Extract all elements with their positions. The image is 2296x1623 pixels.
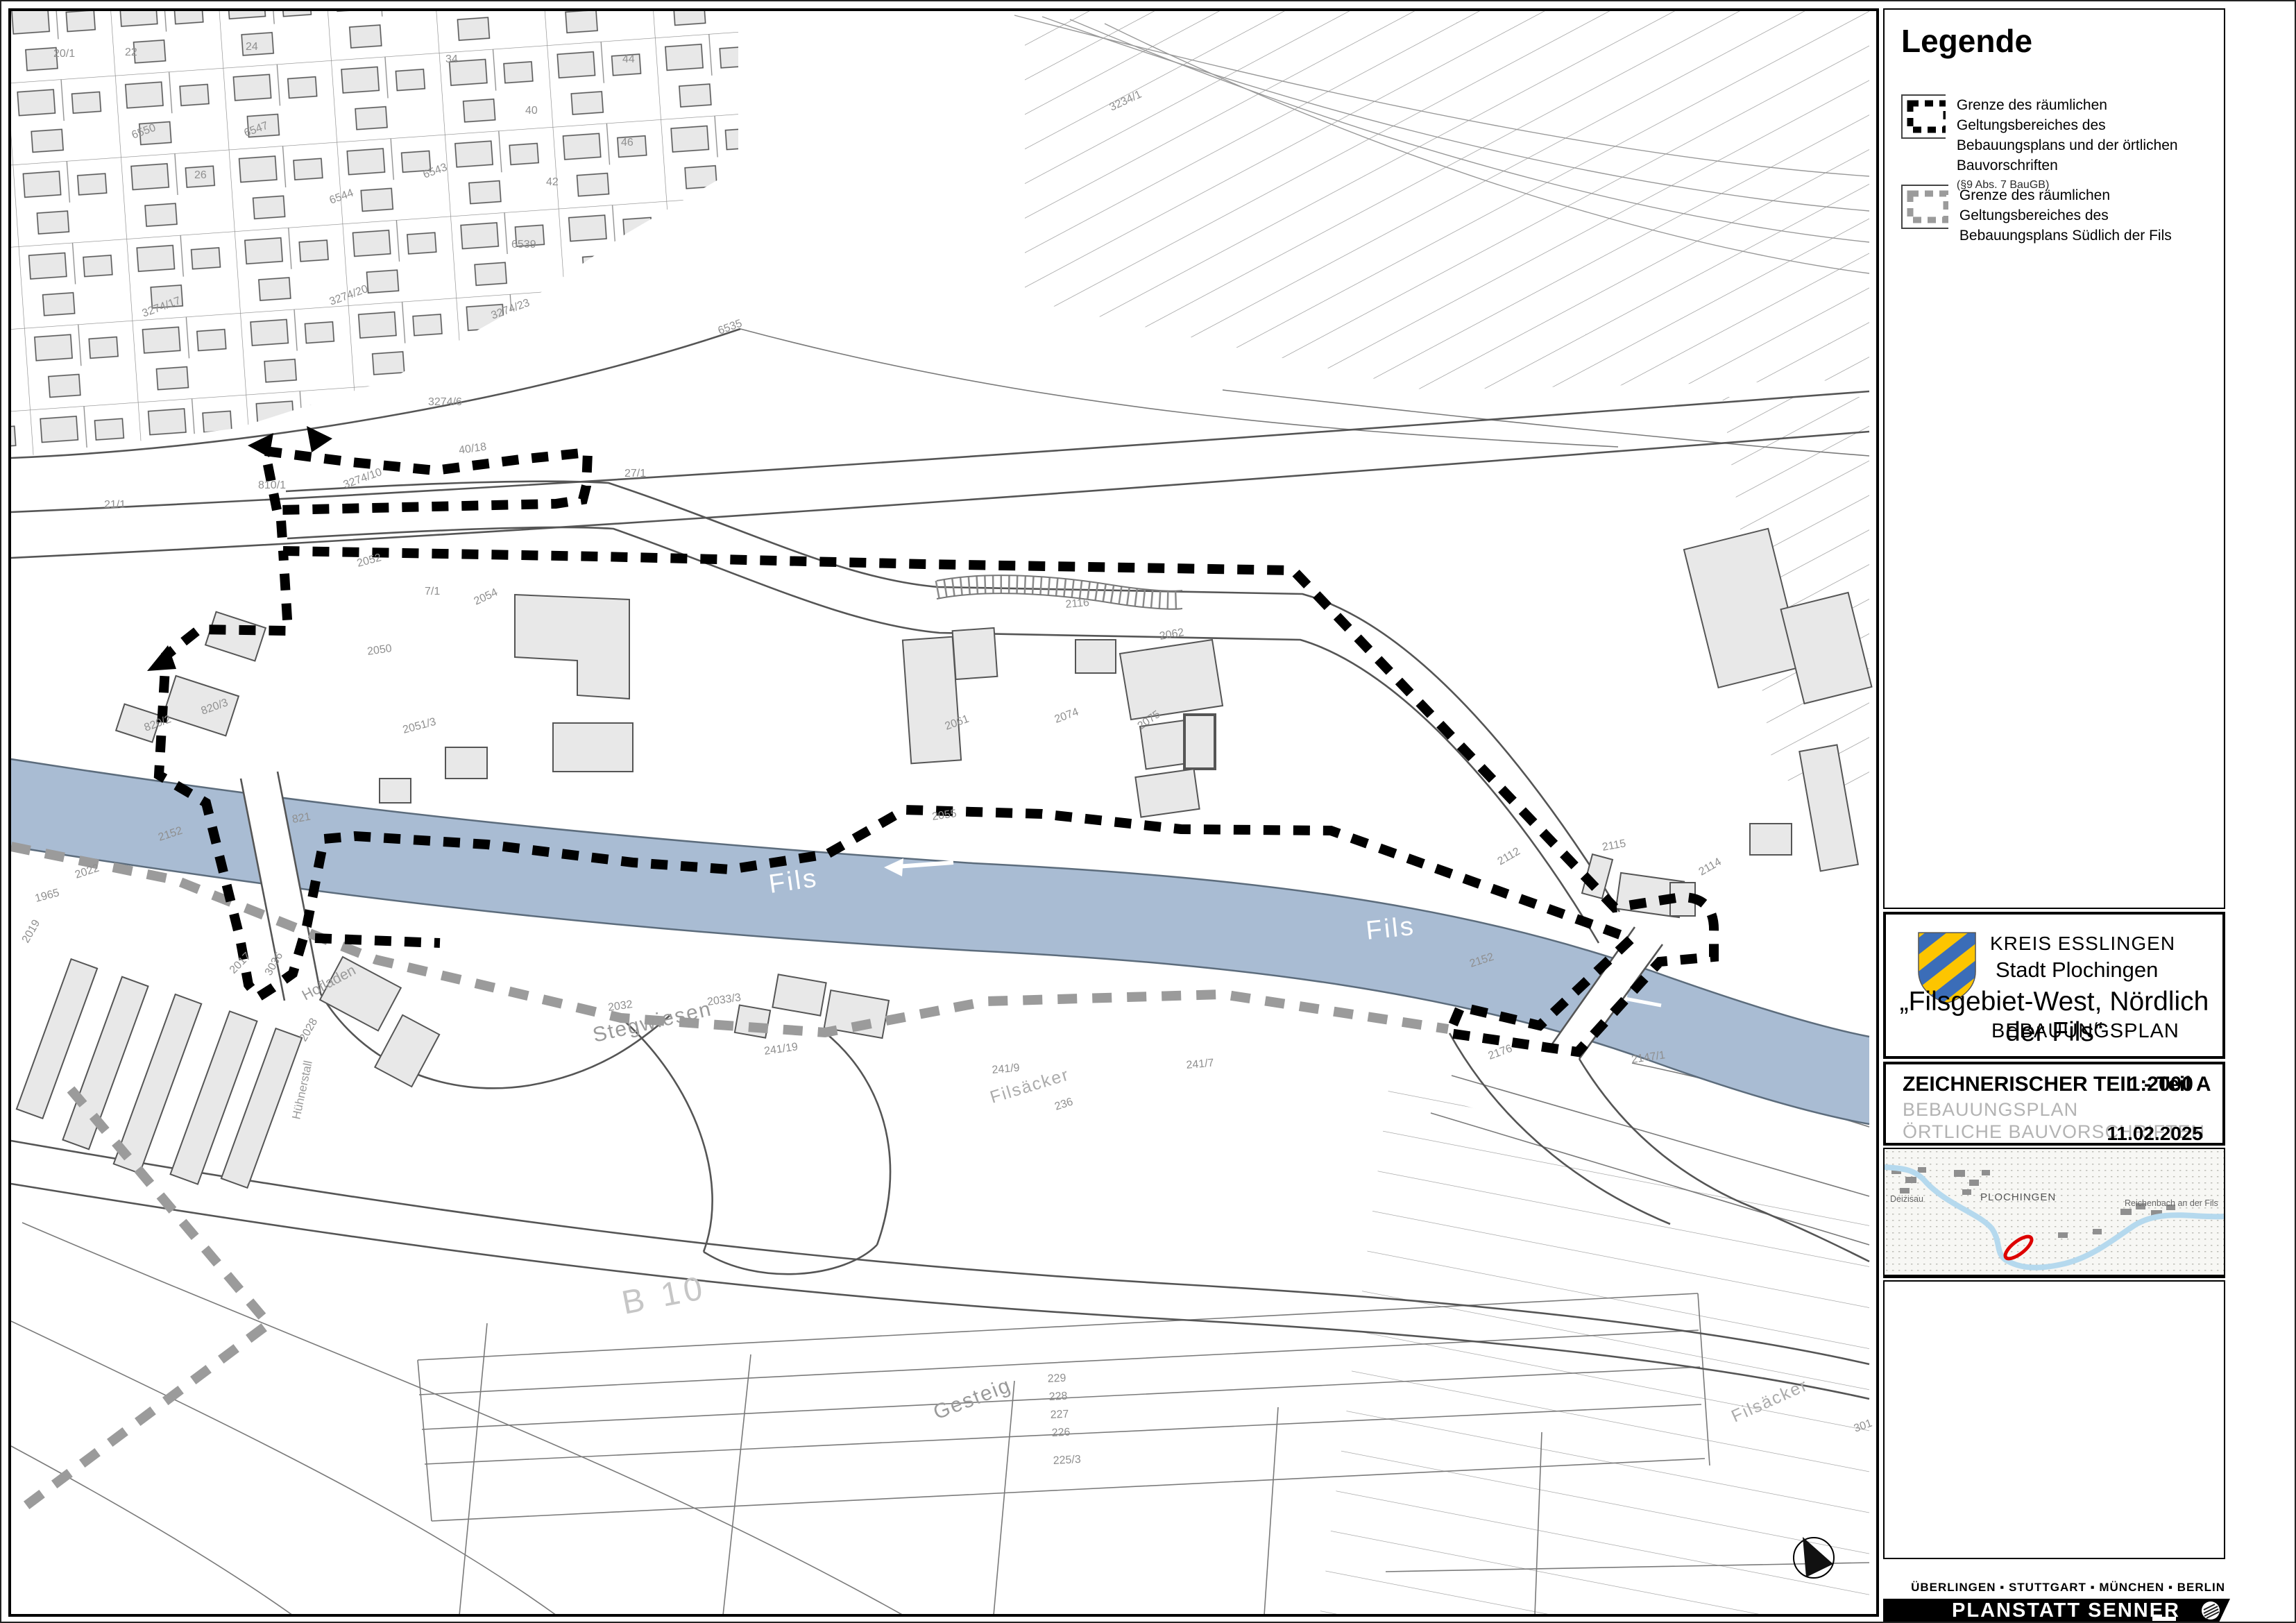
footer-brand: PLANSTATT SENNER bbox=[1952, 1599, 2180, 1622]
map-label: Gesteig bbox=[930, 1374, 1014, 1425]
hatched-band bbox=[937, 575, 1182, 609]
map-label: 6535 bbox=[717, 318, 744, 337]
map-label: 34 bbox=[445, 53, 458, 65]
map-label: 42 bbox=[546, 176, 559, 188]
map-label: Deizisau bbox=[1890, 1194, 1923, 1204]
overview-map: DeizisauPLOCHINGENReichenbach an der Fil… bbox=[1883, 1148, 2225, 1278]
map-label: 2032 bbox=[607, 999, 633, 1014]
authority-name: KREIS ESSLINGEN bbox=[1990, 933, 2175, 955]
map-label: 2116 bbox=[1065, 597, 1090, 611]
map-label: 2074 bbox=[1053, 706, 1080, 726]
legend-item-text: Grenze des räumlichen Geltungsbereiches … bbox=[1959, 186, 2224, 226]
map-label: B 10 bbox=[619, 1269, 710, 1321]
map-label: Reichenbach an der Fils bbox=[2125, 1198, 2218, 1208]
spare-box bbox=[1883, 1280, 2225, 1559]
map-label: 2019 bbox=[20, 918, 43, 945]
map-label: 226 bbox=[1051, 1427, 1071, 1439]
map-label: 2176 bbox=[1487, 1043, 1514, 1062]
map-label: 2112 bbox=[1496, 845, 1522, 867]
drawing-date: 11.02.2025 bbox=[2107, 1123, 2203, 1145]
planstatt-senner-logo-icon bbox=[2201, 1601, 2220, 1620]
map-label: 44 bbox=[622, 53, 635, 65]
drawing-block: ZEICHNERISCHER TEIL - Teil A 1:2000 BEBA… bbox=[1883, 1062, 2225, 1146]
map-label: 2033/3 bbox=[706, 992, 742, 1008]
map-label: 1965 bbox=[34, 887, 61, 905]
map-label: 236 bbox=[1053, 1096, 1075, 1112]
residential-blocks bbox=[11, 11, 738, 458]
map-label: 40/18 bbox=[458, 441, 487, 457]
plan-name: „Filsgebiet-West, Nördlich der Fils“ bbox=[1886, 987, 2222, 1048]
legend-item-plan-boundary: Grenze des räumlichen Geltungsbereiches … bbox=[1901, 94, 2224, 193]
map-label: 2050 bbox=[366, 643, 393, 658]
legend-item-text: Bebauungsplans Südlich der Fils bbox=[1959, 226, 2224, 246]
map-label: 2115 bbox=[1601, 838, 1627, 853]
map-label: 24 bbox=[246, 41, 258, 53]
legend-item-south-boundary: Grenze des räumlichen Geltungsbereiches … bbox=[1901, 185, 2224, 246]
map-label: 229 bbox=[1047, 1373, 1066, 1385]
drawing-sub1: BEBAUUNGSPLAN bbox=[1903, 1099, 2078, 1121]
city-name: Stadt Plochingen bbox=[1996, 958, 2158, 983]
map-label: 2054 bbox=[473, 586, 500, 607]
legend-title: Legende bbox=[1901, 22, 2032, 60]
map-label: 2062 bbox=[1159, 627, 1185, 643]
map-label: 3274/6 bbox=[428, 396, 462, 408]
map-label: 2055 bbox=[931, 808, 958, 823]
map-label: 2022 bbox=[74, 863, 101, 881]
map-label: 241/9 bbox=[992, 1062, 1020, 1076]
map-label: 26 bbox=[194, 169, 207, 181]
map-canvas: FilsFilsStegwiesenGesteigFilsäckerFilsäc… bbox=[1, 1, 1879, 1623]
map-label: 241/7 bbox=[1186, 1057, 1214, 1071]
map-label: 227 bbox=[1050, 1409, 1069, 1421]
map-label: 225/3 bbox=[1053, 1454, 1081, 1467]
map-label: 2051/3 bbox=[402, 716, 438, 736]
map-label: 2052 bbox=[356, 552, 383, 570]
map-label: Fils bbox=[1365, 912, 1417, 946]
map-label: 7/1 bbox=[425, 586, 440, 597]
overview-map-canvas: DeizisauPLOCHINGENReichenbach an der Fil… bbox=[1885, 1149, 2224, 1275]
map-label: PLOCHINGEN bbox=[1980, 1191, 2056, 1203]
map-label: 6539 bbox=[511, 239, 536, 250]
legend-item-text: Grenze des räumlichen Geltungsbereiches … bbox=[1957, 96, 2224, 136]
legend-item-text: Bebauungsplans und der örtlichen Bauvors… bbox=[1957, 136, 2224, 176]
south-boundary-symbol-icon bbox=[1901, 185, 1948, 229]
plan-boundary-symbol-icon bbox=[1901, 94, 1946, 139]
map-label: 27/1 bbox=[624, 468, 646, 479]
map-label: 22 bbox=[125, 46, 137, 58]
footer-cities: ÜBERLINGEN ▪ STUTTGART ▪ MÜNCHEN ▪ BERLI… bbox=[1883, 1581, 2225, 1595]
map-label: 21/1 bbox=[104, 499, 126, 511]
drawing-scale: 1:2000 bbox=[2129, 1073, 2193, 1096]
map-label: 241/19 bbox=[763, 1041, 799, 1057]
map-label: Hühnerstall bbox=[289, 1060, 314, 1121]
map-label: 40 bbox=[525, 105, 538, 117]
map-label: 46 bbox=[621, 137, 633, 148]
footer-bar: PLANSTATT SENNER bbox=[1883, 1599, 2230, 1622]
map-label: 2114 bbox=[1697, 856, 1724, 878]
map-label: 2028 bbox=[298, 1017, 321, 1044]
title-block: KREIS ESSLINGEN Stadt Plochingen BEBAUUN… bbox=[1883, 912, 2225, 1059]
map-label: 228 bbox=[1048, 1391, 1068, 1403]
legend-panel: Legende Grenze des räumlichen Geltungsbe… bbox=[1883, 8, 2225, 909]
footer-sub-mark bbox=[2152, 1617, 2176, 1621]
plan-sheet: FilsFilsStegwiesenGesteigFilsäckerFilsäc… bbox=[0, 0, 2296, 1623]
map-label: 20/1 bbox=[53, 48, 75, 60]
map-label: 810/1 bbox=[258, 479, 286, 491]
